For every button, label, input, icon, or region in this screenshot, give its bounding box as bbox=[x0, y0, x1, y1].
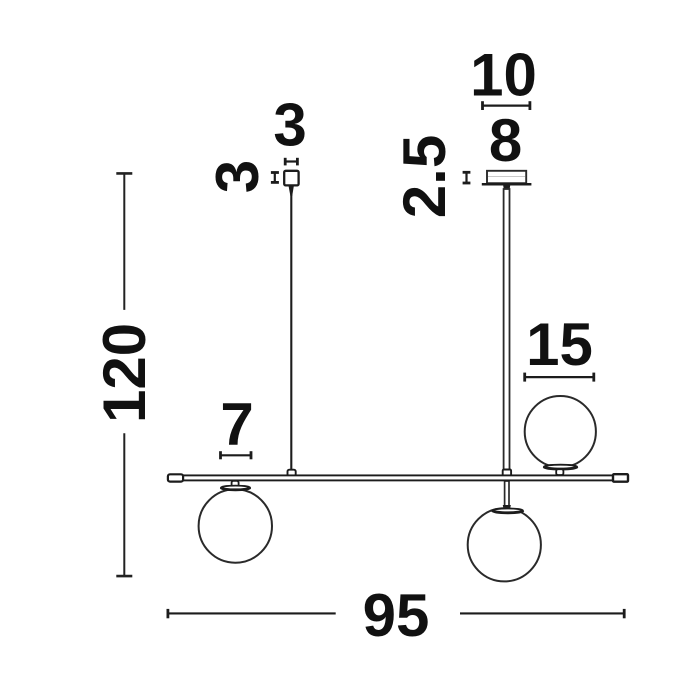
svg-text:7: 7 bbox=[220, 391, 253, 458]
svg-text:15: 15 bbox=[526, 311, 593, 378]
svg-text:3: 3 bbox=[204, 160, 271, 193]
svg-text:3: 3 bbox=[273, 92, 306, 159]
svg-text:2.5: 2.5 bbox=[391, 135, 458, 218]
svg-text:8: 8 bbox=[489, 107, 522, 174]
svg-text:10: 10 bbox=[470, 42, 537, 109]
svg-text:95: 95 bbox=[363, 582, 430, 649]
svg-text:120: 120 bbox=[91, 323, 158, 423]
